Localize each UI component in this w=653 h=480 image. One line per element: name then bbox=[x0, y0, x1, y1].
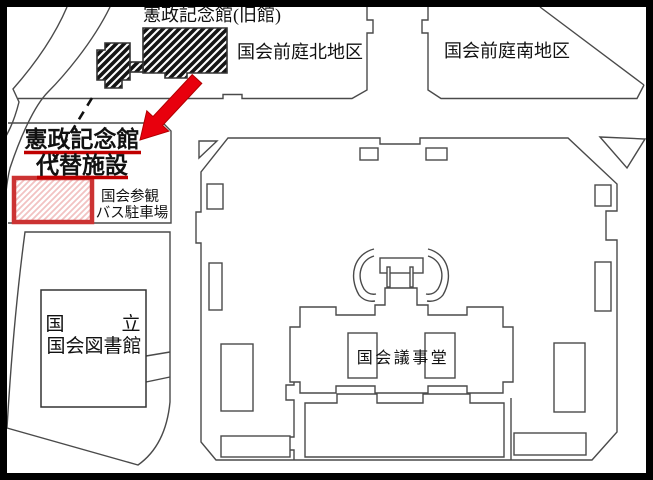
map-canvas: 憲政記念館(旧館) 国会前庭北地区 国会前庭南地区 憲政記念館 代替施設 国会参… bbox=[0, 0, 653, 480]
small-building bbox=[426, 148, 447, 160]
label-old-hall: 憲政記念館(旧館) bbox=[143, 4, 281, 26]
label-facility-line1: 憲政記念館 bbox=[25, 126, 140, 152]
label-library-line2: 国会図書館 bbox=[46, 335, 141, 357]
replacement-facility-rect bbox=[14, 178, 92, 222]
small-building bbox=[360, 148, 378, 160]
label-library-line1: 国 立 bbox=[45, 313, 140, 335]
old-hall-main-hatched bbox=[143, 28, 227, 78]
old-hall-connector-hatched bbox=[130, 62, 143, 72]
diet-front-plaza bbox=[305, 394, 504, 457]
label-facility-line2: 代替施設 bbox=[35, 152, 129, 178]
small-building bbox=[514, 433, 586, 455]
label-bus-parking-line2: バス駐車場 bbox=[96, 205, 169, 222]
small-building bbox=[595, 262, 611, 311]
map-page: 憲政記念館(旧館) 国会前庭北地区 国会前庭南地区 憲政記念館 代替施設 国会参… bbox=[0, 0, 653, 480]
label-north-garden: 国会前庭北地区 bbox=[237, 42, 363, 62]
small-building bbox=[595, 185, 611, 206]
label-diet-building: 国会議事堂 bbox=[357, 349, 450, 367]
label-south-garden: 国会前庭南地区 bbox=[444, 41, 570, 61]
entrance-post-left bbox=[387, 267, 390, 287]
small-building bbox=[221, 344, 253, 411]
entrance-post-right bbox=[410, 267, 413, 287]
label-bus-parking-line1: 国会参観 bbox=[101, 188, 159, 205]
small-building bbox=[209, 263, 222, 310]
small-building bbox=[221, 436, 290, 457]
small-building bbox=[554, 343, 585, 412]
small-building bbox=[207, 184, 223, 209]
